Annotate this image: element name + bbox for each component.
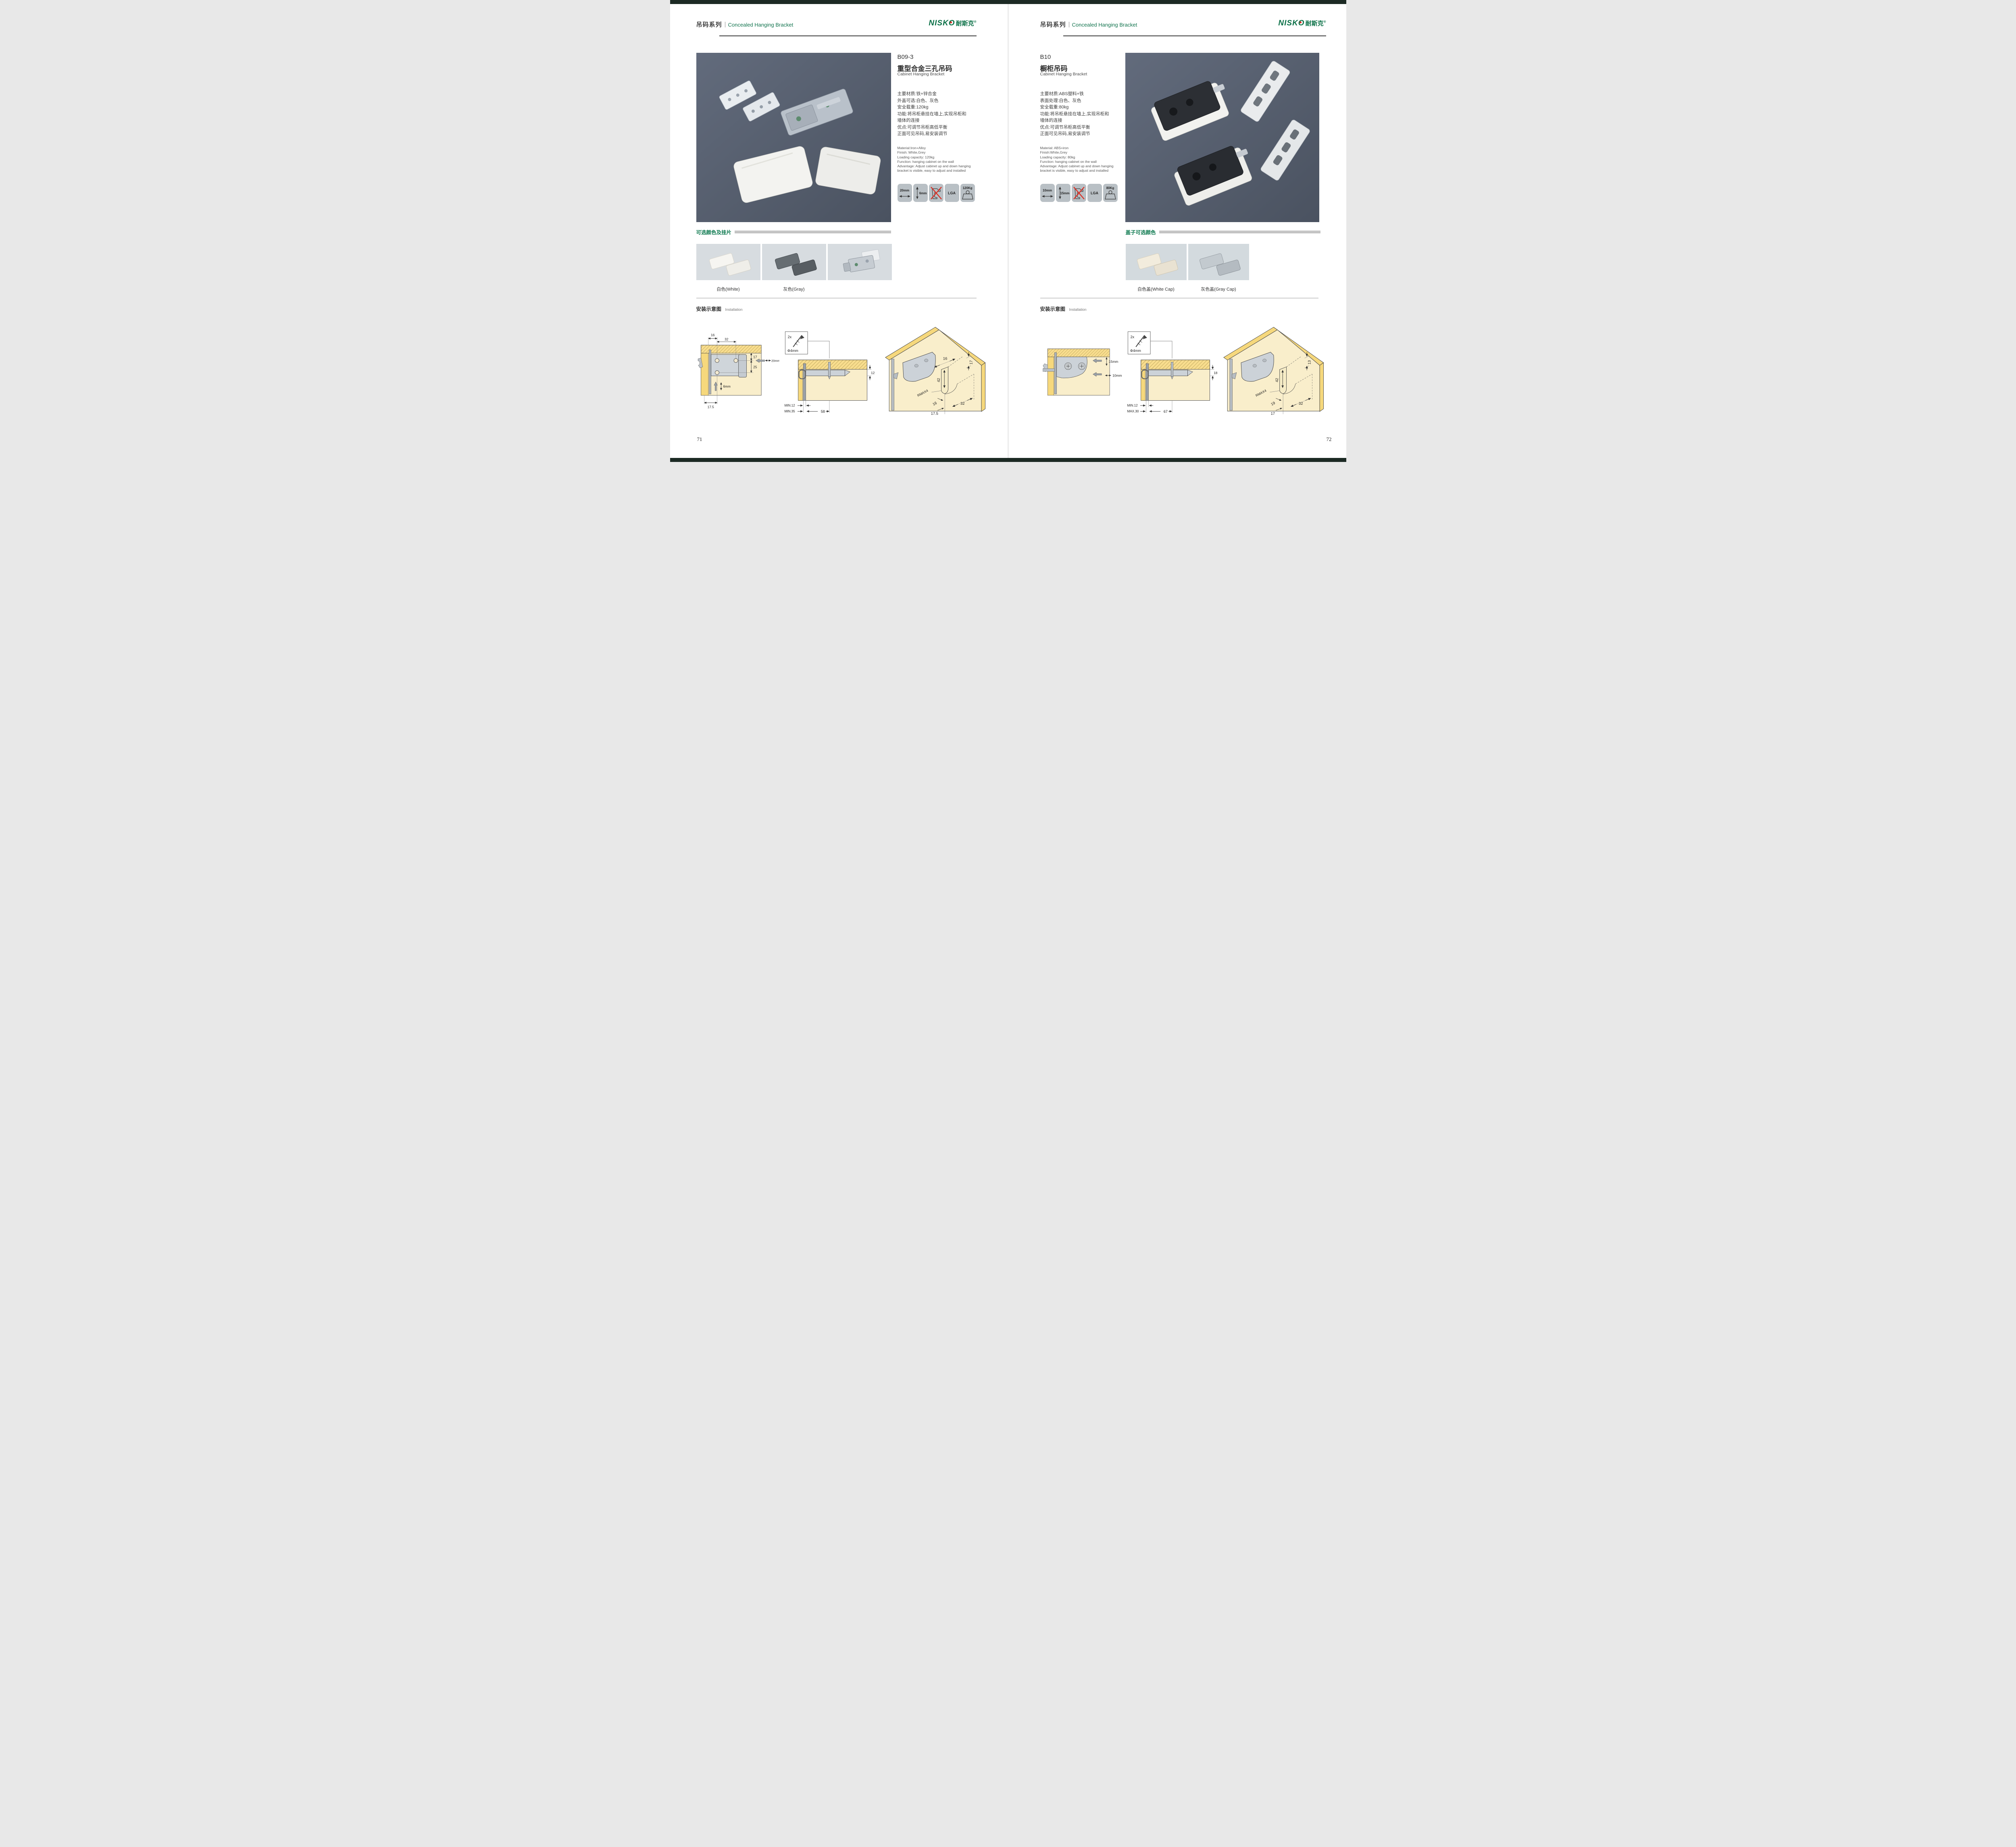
- specs-english: Material:Iron+Alloy Finish: White,Grey L…: [898, 146, 971, 173]
- icon-label: LGA: [1087, 191, 1102, 195]
- spec-line: 安全载重:120kg: [898, 104, 966, 111]
- header-rule: [1063, 35, 1326, 36]
- spec-line: Loading capacity: 80kg: [1040, 155, 1114, 160]
- dim-edge-13: 13: [1307, 360, 1311, 364]
- spec-line: Function: hanging cabinet on the wall: [898, 160, 971, 164]
- spec-line: 优点:可调节吊柜高低平衡: [898, 124, 966, 131]
- load-capacity-icon: 80Kg: [1103, 184, 1118, 202]
- groove-depth-icon: 15mm: [1056, 184, 1070, 202]
- screw: [828, 362, 830, 376]
- groove-width-icon: 10mm: [1040, 184, 1055, 202]
- header-separator: [1069, 22, 1069, 27]
- dim-17: 17: [1270, 412, 1275, 416]
- center-fold: [1007, 4, 1009, 458]
- section-divider: [1040, 298, 1318, 298]
- dim-10mm: 10mm: [1112, 374, 1122, 378]
- product-code: B09-3: [898, 54, 914, 60]
- product-photo-illustration: [696, 53, 891, 222]
- screw-diameter: Φ4mm: [1130, 349, 1141, 353]
- install-diagram-side: 2x Φ4mm 18: [1126, 327, 1218, 414]
- spec-line: Finish: White,Grey: [898, 150, 971, 155]
- header-rule: [719, 35, 977, 36]
- section-divider: [696, 298, 977, 298]
- product-code: B10: [1040, 54, 1051, 60]
- install-diagram-side: 2x Φ4mm 12: [783, 327, 876, 414]
- dim-58: 58: [821, 410, 825, 414]
- product-name-en: Cabinet Hanging Bracket: [898, 72, 945, 77]
- screw-qty: 2x: [787, 335, 791, 339]
- series-title: 吊码系列: [696, 21, 722, 28]
- lga-cert-icon: LGA: [945, 184, 959, 202]
- icon-label: 20mm: [898, 189, 912, 192]
- groove-outline: [1279, 367, 1286, 394]
- spec-line: Advantage: Adjust cabinet up and down ha…: [1040, 164, 1114, 168]
- icon-label: 15mm: [1060, 191, 1069, 195]
- spec-line: bracket is visible, easy to adjust and i…: [1040, 168, 1114, 173]
- specs-chinese: 主要材质:ABS塑料+铁 表面处理:白色、灰色 安全载重:80kg 功能:将吊柜…: [1040, 91, 1109, 137]
- dim-max30: MAX.30: [1127, 410, 1139, 413]
- catalog-page-72: 吊码系列Concealed Hanging Bracket NISKO耐斯克® …: [1008, 4, 1346, 458]
- icon-label: LGA: [945, 191, 959, 195]
- screw-qty: 2x: [1130, 335, 1134, 339]
- swatch-label-gray: 灰色(Gray): [762, 286, 826, 292]
- dim-17: 17: [753, 355, 757, 359]
- install-diagram-isometric: 16 17 42 RMAX4 16 32 17.5: [879, 313, 988, 422]
- dim-42: 42: [936, 378, 940, 382]
- spec-line: 正面可见吊码,易安装调节: [898, 131, 966, 137]
- spec-line: Material: ABS+iron: [1040, 146, 1114, 150]
- screw-diameter: Φ4mm: [787, 349, 798, 353]
- groove-outline: [941, 367, 948, 394]
- icon-label: 6mm: [919, 191, 927, 195]
- brand-chinese: 耐斯克: [956, 20, 974, 27]
- specs-english: Material: ABS+iron Finish:White,Grey Loa…: [1040, 146, 1114, 173]
- swatch-bracket: [828, 244, 892, 280]
- dim-17.5: 17.5: [931, 412, 938, 416]
- spec-line: 主要材质:铁+锌合金: [898, 91, 966, 98]
- dim-edge-17: 17: [969, 360, 973, 364]
- load-capacity-icon: 120Kg: [960, 184, 975, 202]
- spec-line: 主要材质:ABS塑料+铁: [1040, 91, 1109, 98]
- specs-chinese: 主要材质:铁+锌合金 外盖可选:白色、灰色 安全载重:120kg 功能:将吊柜悬…: [898, 91, 966, 137]
- page-header: 吊码系列Concealed Hanging Bracket NISKO耐斯克®: [1040, 20, 1326, 34]
- icon-label: 10mm: [1040, 189, 1055, 192]
- product-photo: [696, 53, 891, 222]
- series-subtitle: Concealed Hanging Bracket: [728, 22, 793, 28]
- spec-line: 墙体的连接: [898, 117, 966, 124]
- groove-width-icon: 20mm: [898, 184, 912, 202]
- product-hero: B10 橱柜吊码 Cabinet Hanging Bracket 主要材质:AB…: [1040, 53, 1326, 222]
- brand-chinese: 耐斯克: [1306, 20, 1324, 27]
- product-info: B10 橱柜吊码 Cabinet Hanging Bracket 主要材质:AB…: [1040, 53, 1121, 222]
- no-drill-icon: [929, 184, 943, 202]
- product-photo: [1125, 53, 1319, 222]
- product-photo-illustration: [1125, 53, 1319, 222]
- spec-line: 外盖可选:白色、灰色: [898, 98, 966, 104]
- series-title: 吊码系列: [1040, 21, 1066, 28]
- spec-line: Finish:White,Grey: [1040, 150, 1114, 155]
- swatch-white: [696, 244, 760, 280]
- dim-32: 32: [960, 401, 964, 406]
- spec-line: Function: hanging cabinet on the wall: [1040, 160, 1114, 164]
- spec-line: Material:Iron+Alloy: [898, 146, 971, 150]
- spec-line: bracket is visible, easy to adjust and i…: [898, 168, 971, 173]
- dim-67: 67: [1163, 410, 1167, 414]
- dim-20mm: 20mm: [771, 359, 779, 363]
- install-diagram-section: 15mm 10mm: [1043, 331, 1123, 406]
- page-header: 吊码系列Concealed Hanging Bracket NISKO耐斯克®: [696, 20, 977, 34]
- spec-icons-row: 10mm 15mm: [1040, 184, 1118, 202]
- dim-25: 25: [753, 365, 757, 369]
- colors-heading-text: 可选颜色及挂片: [696, 228, 732, 236]
- logo-red-dot-icon: [950, 21, 952, 23]
- swatch-gray-cap: [1188, 244, 1249, 280]
- install-diagram-isometric: 13 42 RMAX4 19 32 17: [1217, 313, 1327, 422]
- swatch-label-white: 白色(White): [696, 286, 760, 292]
- swatch-label-gray-cap: 灰色盖(Gray Cap): [1188, 286, 1249, 292]
- dim-min12: MIN.12: [1127, 404, 1138, 408]
- dim-groove-16: 16: [943, 356, 947, 360]
- spec-line: 墙体的连接: [1040, 117, 1109, 124]
- spec-line: Advantage: Adjust cabinet up and down ha…: [898, 164, 971, 168]
- bottom-bar: [670, 458, 1346, 462]
- install-heading-en: Installation: [725, 308, 742, 312]
- phillips-screw: [1064, 363, 1071, 370]
- dim-17.5: 17.5: [707, 405, 714, 409]
- header-separator: [725, 22, 725, 27]
- swatch-white-cap: [1126, 244, 1187, 280]
- install-heading: 安装示意图 Installation: [696, 305, 743, 313]
- dim-12: 12: [871, 371, 875, 375]
- page-number: 72: [1327, 436, 1332, 443]
- dim-42: 42: [1275, 378, 1279, 382]
- color-swatches: [1126, 244, 1249, 280]
- registered-mark: ®: [1324, 20, 1326, 24]
- no-drill-icon: [1072, 184, 1086, 202]
- heading-rule: [1159, 231, 1320, 233]
- icon-label: 120Kg: [960, 186, 975, 190]
- registered-mark: ®: [974, 20, 977, 24]
- brand-logo: NISKO耐斯克®: [1278, 19, 1326, 28]
- product-info: B09-3 重型合金三孔吊码 Cabinet Hanging Bracket 主…: [898, 53, 977, 222]
- spec-line: 正面可见吊码,易安装调节: [1040, 131, 1109, 137]
- product-name-en: Cabinet Hanging Bracket: [1040, 72, 1087, 77]
- series-subtitle: Concealed Hanging Bracket: [1072, 22, 1137, 28]
- install-heading: 安装示意图 Installation: [1040, 305, 1087, 313]
- spec-line: 功能:将吊柜悬挂在墙上,实现吊柜和: [898, 111, 966, 118]
- dim-min35: MIN.35: [784, 410, 795, 413]
- dim-32: 32: [725, 337, 729, 341]
- install-diagram-section: 16 32 17 25 20mm 6mm 17.5: [696, 326, 779, 413]
- product-hero: B09-3 重型合金三孔吊码 Cabinet Hanging Bracket 主…: [696, 53, 977, 222]
- spec-line: 安全载重:80kg: [1040, 104, 1109, 111]
- spec-line: Loading capacity: 120kg: [898, 155, 971, 160]
- dim-15mm: 15mm: [1108, 360, 1118, 364]
- catalog-page-71: 吊码系列Concealed Hanging Bracket NISKO耐斯克®: [670, 4, 1008, 458]
- spec-icons-row: 20mm 6mm: [898, 184, 975, 202]
- swatch-gray: [762, 244, 826, 280]
- colors-section-heading: 盖子可选颜色: [1126, 228, 1320, 236]
- screw: [1171, 362, 1173, 376]
- page-number: 71: [697, 436, 702, 443]
- catalog-spread: 吊码系列Concealed Hanging Bracket NISKO耐斯克®: [670, 0, 1346, 462]
- heading-rule: [735, 231, 891, 233]
- phillips-screw: [1078, 363, 1085, 370]
- dim-32: 32: [1299, 401, 1303, 406]
- icon-label: 80Kg: [1103, 186, 1118, 190]
- dim-min12: MIN.12: [784, 404, 795, 408]
- brand-logo: NISKO耐斯克®: [929, 19, 976, 28]
- spec-line: 优点:可调节吊柜高低平衡: [1040, 124, 1109, 131]
- top-bar: [670, 0, 1346, 4]
- dim-16: 16: [711, 333, 715, 337]
- logo-red-dot-icon: [1300, 21, 1302, 23]
- groove-depth-icon: 6mm: [913, 184, 928, 202]
- lga-cert-icon: LGA: [1087, 184, 1102, 202]
- install-heading-en: Installation: [1069, 308, 1086, 312]
- colors-section-heading: 可选颜色及挂片: [696, 228, 891, 236]
- colors-heading-text: 盖子可选颜色: [1126, 228, 1156, 236]
- swatch-label-white-cap: 白色盖(White Cap): [1126, 286, 1187, 292]
- install-heading-cn: 安装示意图: [696, 306, 722, 312]
- dim-6mm: 6mm: [723, 385, 731, 389]
- color-swatches: [696, 244, 892, 280]
- spec-line: 表面处理:白色、灰色: [1040, 98, 1109, 104]
- install-heading-cn: 安装示意图: [1040, 306, 1066, 312]
- spec-line: 功能:将吊柜悬挂在墙上,实现吊柜和: [1040, 111, 1109, 118]
